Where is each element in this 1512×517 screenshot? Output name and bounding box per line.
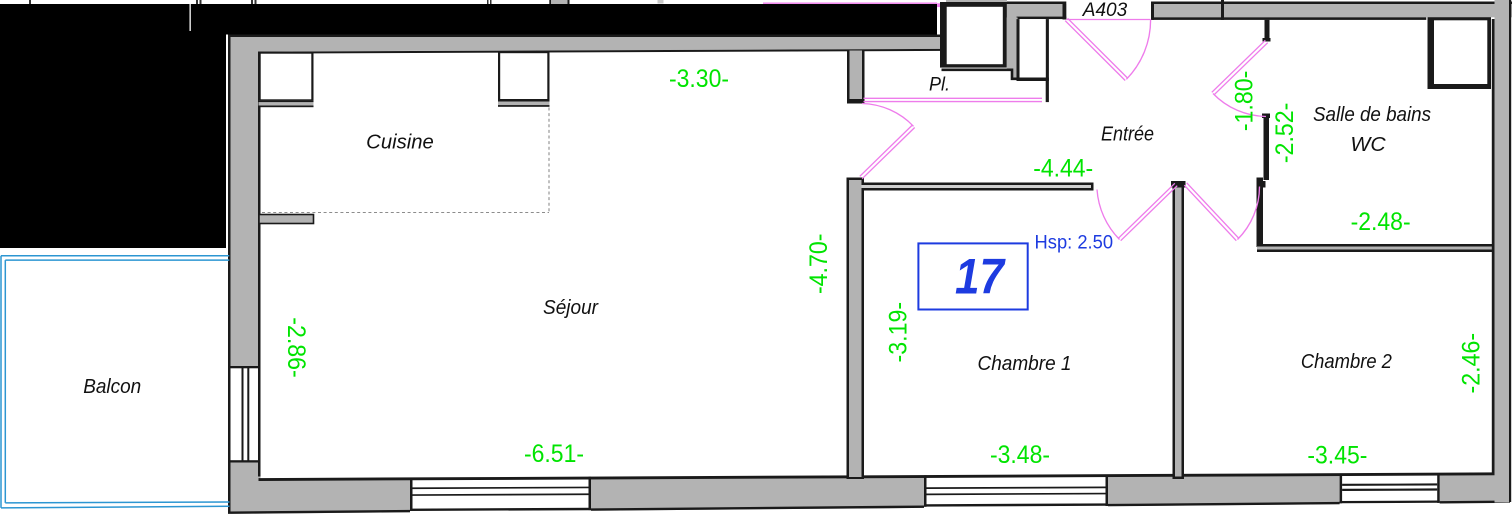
svg-text:-3.48-: -3.48- <box>990 441 1050 469</box>
svg-text:-3.19-: -3.19- <box>884 302 912 363</box>
svg-text:Chambre 2: Chambre 2 <box>1301 351 1392 373</box>
svg-text:-2.48-: -2.48- <box>1351 208 1411 236</box>
svg-text:Séjour: Séjour <box>543 297 599 319</box>
svg-text:A403: A403 <box>1082 0 1128 21</box>
svg-text:-6.51-: -6.51- <box>524 440 584 468</box>
svg-text:-2.86-: -2.86- <box>282 317 310 378</box>
svg-text:-1.80-: -1.80- <box>1230 71 1258 131</box>
svg-text:Balcon: Balcon <box>83 376 141 398</box>
svg-text:Cuisine: Cuisine <box>366 132 434 154</box>
svg-text:-3.30-: -3.30- <box>669 65 729 93</box>
svg-text:Hsp: 2.50: Hsp: 2.50 <box>1035 231 1114 253</box>
svg-text:-3.45-: -3.45- <box>1307 442 1367 470</box>
svg-text:Pl.: Pl. <box>929 74 950 96</box>
svg-text:Entrée: Entrée <box>1101 123 1154 145</box>
svg-text:17: 17 <box>955 249 1006 305</box>
svg-text:Salle de bains: Salle de bains <box>1313 104 1431 126</box>
svg-text:WC: WC <box>1350 134 1386 156</box>
svg-text:-2.46-: -2.46- <box>1458 333 1486 394</box>
svg-text:Chambre 1: Chambre 1 <box>978 353 1072 375</box>
svg-text:-4.70-: -4.70- <box>805 234 833 295</box>
svg-text:-4.44-: -4.44- <box>1033 154 1093 182</box>
svg-text:-2.52-: -2.52- <box>1271 103 1299 164</box>
